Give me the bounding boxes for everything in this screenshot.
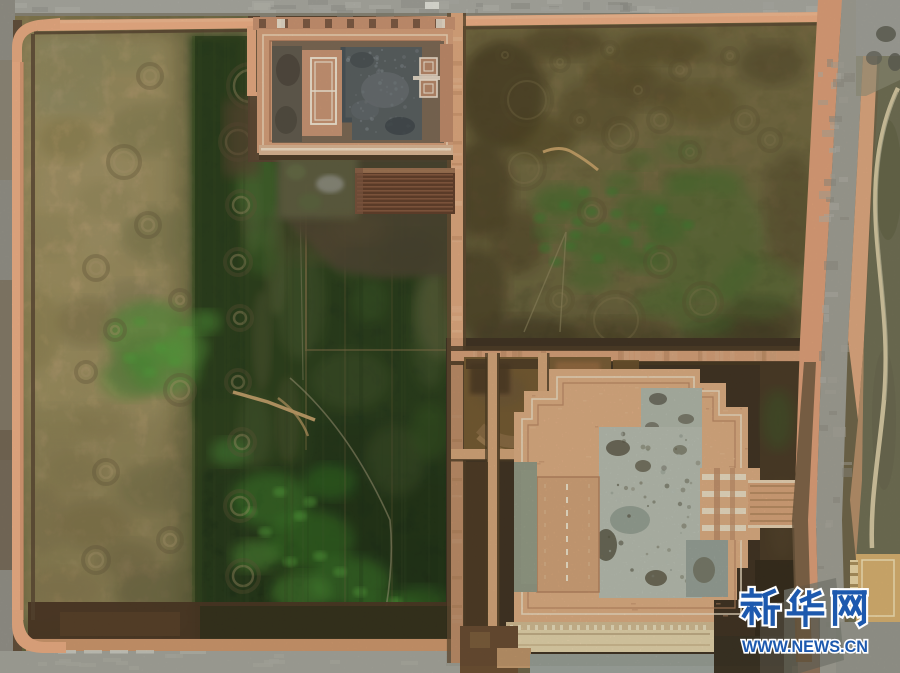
svg-text:WWW.NEWS.CN: WWW.NEWS.CN	[742, 638, 868, 656]
